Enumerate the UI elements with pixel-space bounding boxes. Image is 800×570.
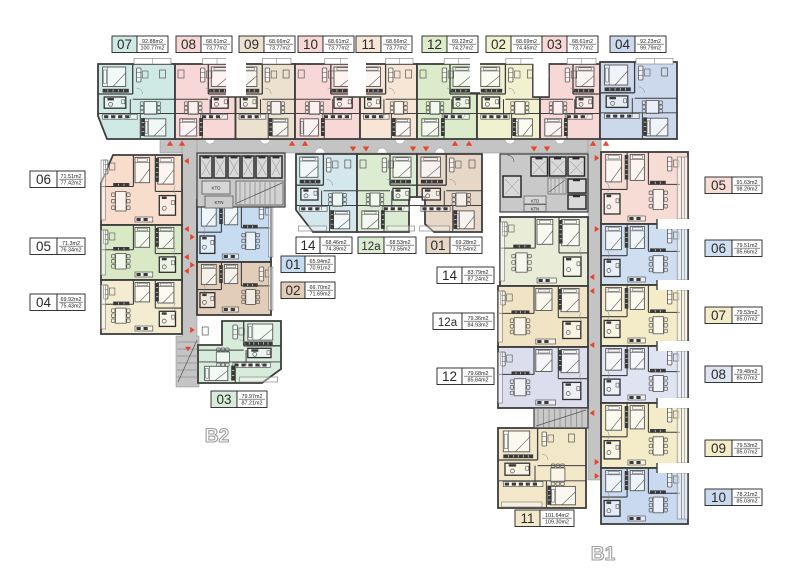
- svg-text:75.54m2: 75.54m2: [456, 247, 477, 253]
- svg-text:73.77m2: 73.77m2: [572, 46, 593, 52]
- svg-text:68.66m2: 68.66m2: [269, 39, 290, 45]
- svg-text:65.94m2: 65.94m2: [310, 259, 331, 265]
- svg-text:11: 11: [361, 37, 375, 52]
- svg-text:10: 10: [303, 37, 318, 52]
- svg-text:76.34m2: 76.34m2: [61, 248, 82, 254]
- svg-text:KTD: KTD: [531, 198, 539, 203]
- svg-text:79.68m2: 79.68m2: [468, 371, 489, 377]
- svg-text:68.46m2: 68.46m2: [326, 240, 347, 246]
- svg-text:68.61m2: 68.61m2: [572, 39, 593, 45]
- svg-text:11: 11: [520, 511, 534, 526]
- svg-text:B2: B2: [205, 426, 229, 447]
- svg-text:02: 02: [491, 37, 506, 52]
- svg-text:83.79m2: 83.79m2: [468, 270, 489, 276]
- svg-text:92.23m2: 92.23m2: [640, 39, 661, 45]
- svg-text:03: 03: [547, 37, 562, 52]
- svg-text:98.29m2: 98.29m2: [737, 187, 758, 193]
- svg-text:99.79m2: 99.79m2: [640, 46, 661, 52]
- svg-text:12a: 12a: [438, 317, 458, 329]
- svg-text:79.48m2: 79.48m2: [737, 369, 758, 375]
- svg-text:87.21m2: 87.21m2: [242, 401, 263, 407]
- svg-text:12: 12: [442, 369, 457, 384]
- svg-text:71.69m2: 71.69m2: [310, 292, 331, 298]
- svg-text:68.53m2: 68.53m2: [390, 240, 411, 246]
- svg-text:71.3m2: 71.3m2: [62, 241, 80, 247]
- svg-text:03: 03: [216, 392, 231, 407]
- svg-text:05: 05: [36, 239, 51, 254]
- svg-text:68.61m2: 68.61m2: [206, 39, 227, 45]
- svg-text:85.07m2: 85.07m2: [737, 450, 758, 456]
- svg-text:79.36m2: 79.36m2: [468, 316, 489, 322]
- svg-text:74.27m2: 74.27m2: [452, 46, 473, 52]
- svg-text:69.22m2: 69.22m2: [452, 39, 473, 45]
- svg-text:07: 07: [711, 308, 726, 323]
- svg-text:KTN: KTN: [531, 206, 539, 211]
- svg-text:79.97m2: 79.97m2: [242, 394, 263, 400]
- svg-text:73.77m2: 73.77m2: [328, 46, 349, 52]
- svg-text:85.84m2: 85.84m2: [468, 378, 489, 384]
- svg-text:84.93m2: 84.93m2: [468, 323, 489, 329]
- svg-text:69.92m2: 69.92m2: [61, 297, 82, 303]
- svg-text:70.91m2: 70.91m2: [310, 266, 331, 272]
- svg-text:66.70m2: 66.70m2: [310, 285, 331, 291]
- svg-text:73.77m2: 73.77m2: [386, 46, 407, 52]
- svg-text:04: 04: [36, 295, 52, 310]
- svg-text:08: 08: [181, 37, 196, 52]
- svg-text:14: 14: [442, 268, 458, 283]
- svg-text:07: 07: [117, 37, 132, 52]
- svg-text:08: 08: [711, 367, 726, 382]
- svg-text:73.77m2: 73.77m2: [206, 46, 227, 52]
- svg-text:01: 01: [285, 257, 300, 272]
- svg-text:68.69m2: 68.69m2: [516, 39, 537, 45]
- svg-text:73.77m2: 73.77m2: [269, 46, 290, 52]
- svg-text:06: 06: [36, 172, 51, 187]
- svg-text:85.07m2: 85.07m2: [737, 317, 758, 323]
- svg-text:79.53m2: 79.53m2: [737, 310, 758, 316]
- svg-text:12a: 12a: [361, 241, 381, 253]
- svg-text:101.64m2: 101.64m2: [545, 513, 569, 519]
- svg-text:85.03m2: 85.03m2: [737, 499, 758, 505]
- svg-text:04: 04: [615, 37, 631, 52]
- svg-text:91.63m2: 91.63m2: [737, 180, 758, 186]
- svg-text:100.77m2: 100.77m2: [141, 46, 165, 52]
- svg-text:14: 14: [300, 238, 316, 253]
- svg-text:85.07m2: 85.07m2: [737, 376, 758, 382]
- svg-text:74.39m2: 74.39m2: [326, 247, 347, 253]
- svg-text:71.51m2: 71.51m2: [61, 174, 82, 180]
- svg-text:09: 09: [711, 441, 726, 456]
- svg-text:74.45m2: 74.45m2: [516, 46, 537, 52]
- svg-text:09: 09: [244, 37, 259, 52]
- svg-text:77.42m2: 77.42m2: [61, 181, 82, 187]
- svg-text:75.43m2: 75.43m2: [61, 304, 82, 310]
- svg-text:109.30m2: 109.30m2: [545, 520, 569, 526]
- svg-text:02: 02: [285, 283, 300, 298]
- svg-text:68.61m2: 68.61m2: [328, 39, 349, 45]
- svg-text:B1: B1: [591, 544, 616, 565]
- svg-text:KTN: KTN: [215, 200, 224, 205]
- svg-text:10: 10: [711, 490, 726, 505]
- svg-text:06: 06: [711, 241, 726, 256]
- svg-text:79.53m2: 79.53m2: [737, 443, 758, 449]
- svg-text:12: 12: [427, 37, 442, 52]
- svg-text:01: 01: [430, 238, 445, 253]
- svg-text:78.21m2: 78.21m2: [737, 492, 758, 498]
- svg-text:69.28m2: 69.28m2: [456, 240, 477, 246]
- svg-text:05: 05: [711, 178, 726, 193]
- svg-text:87.24m2: 87.24m2: [468, 277, 489, 283]
- svg-text:85.66m2: 85.66m2: [737, 250, 758, 256]
- svg-text:92.88m2: 92.88m2: [142, 39, 163, 45]
- svg-text:79.51m2: 79.51m2: [737, 243, 758, 249]
- svg-text:68.66m2: 68.66m2: [386, 39, 407, 45]
- svg-text:73.55m2: 73.55m2: [390, 247, 411, 253]
- svg-text:KTD: KTD: [212, 186, 222, 191]
